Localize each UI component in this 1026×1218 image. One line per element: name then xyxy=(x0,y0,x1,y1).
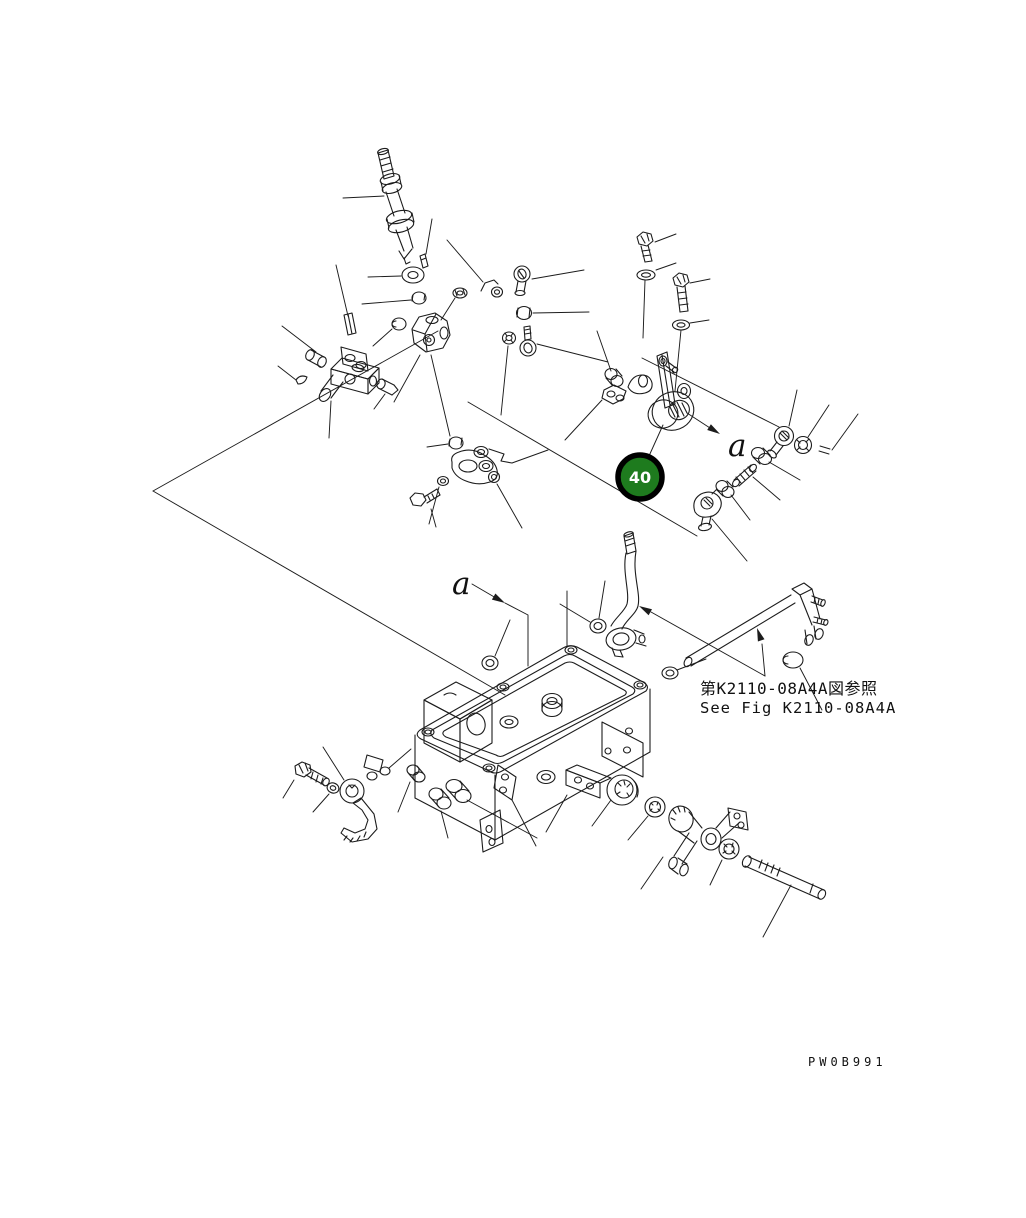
label-a-upper-text: a xyxy=(728,428,746,464)
leader-lever xyxy=(343,196,384,198)
balloon-number: 40 xyxy=(629,468,651,487)
cam-lever-group xyxy=(283,747,411,842)
lever-pin xyxy=(420,219,432,268)
control-rod xyxy=(682,583,828,668)
note-japanese: 第K2110-08A4A図参照 xyxy=(700,679,877,698)
washer-bracket-cluster xyxy=(410,437,548,528)
hex-plug xyxy=(362,292,426,304)
arrowhead-to-rod xyxy=(757,628,765,642)
topright-bolts xyxy=(637,232,710,391)
left-bracket-assembly xyxy=(278,265,406,438)
fastener-chain xyxy=(694,390,858,561)
washer-under-lever xyxy=(368,267,424,283)
bent-shift-lever xyxy=(604,531,646,657)
mid-fasteners xyxy=(441,240,608,415)
shift-lever-bolt xyxy=(377,147,415,264)
section-label-a-upper: a xyxy=(687,413,746,464)
parts-diagram-page: a a 第K2110-08A4A図参照 See Fig K2110-08A4A … xyxy=(0,0,1026,1218)
box-bushings xyxy=(398,581,606,838)
note-english: See Fig K2110-08A4A xyxy=(700,699,896,717)
reference-note: 第K2110-08A4A図参照 See Fig K2110-08A4A xyxy=(639,606,896,717)
arrowhead-a-lower xyxy=(492,594,505,604)
construction-lines xyxy=(153,331,779,695)
exploded-parts-drawing: a a 第K2110-08A4A図参照 See Fig K2110-08A4A … xyxy=(0,0,1026,1218)
arrowhead-a-upper xyxy=(707,424,720,434)
fork-shaft-group xyxy=(546,765,827,937)
cube-block xyxy=(394,313,450,436)
arrowhead-to-lever xyxy=(639,606,652,615)
section-label-a-lower: a xyxy=(452,566,528,666)
drawing-number: PW0B991 xyxy=(808,1055,887,1069)
housing-box xyxy=(415,591,822,852)
part-balloon-40[interactable]: 40 xyxy=(618,425,663,499)
label-a-lower-text: a xyxy=(452,566,470,602)
